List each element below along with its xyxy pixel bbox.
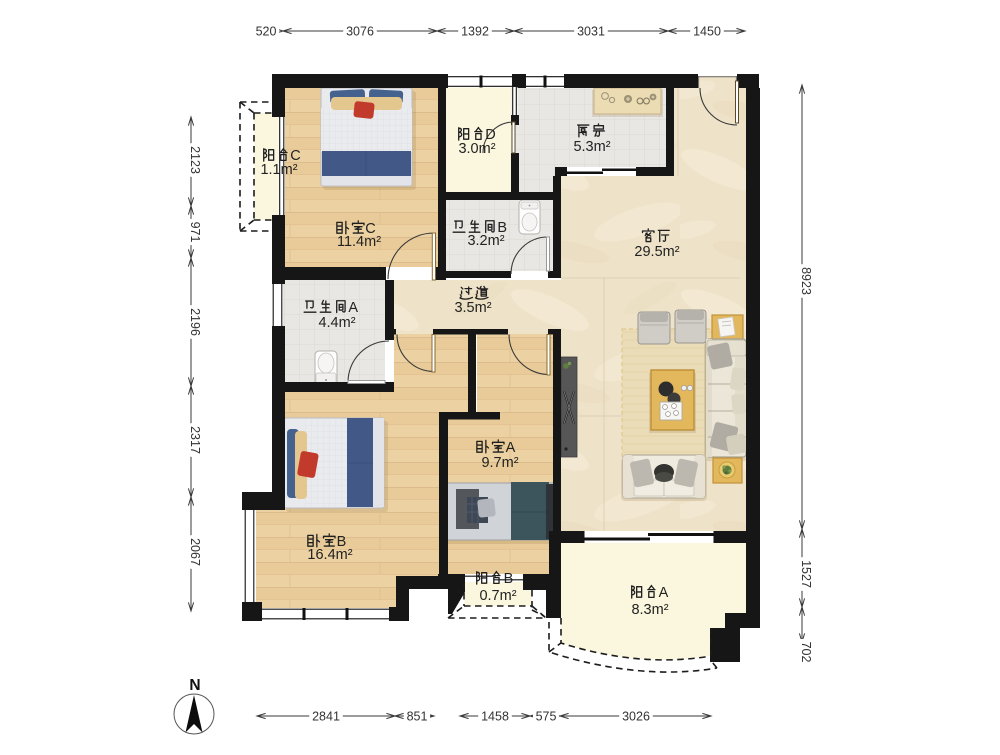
svg-text:1450: 1450 [693,25,721,39]
svg-text:2841: 2841 [312,710,340,724]
svg-text:8.3m²: 8.3m² [631,602,668,618]
svg-text:1527: 1527 [799,560,813,588]
svg-text:1458: 1458 [481,710,509,724]
svg-text:0.7m²: 0.7m² [479,588,516,604]
svg-text:9.7m²: 9.7m² [481,455,518,471]
svg-text:971: 971 [188,222,202,243]
svg-text:3.5m²: 3.5m² [454,300,491,316]
svg-text:3.0m²: 3.0m² [458,141,495,157]
svg-text:2123: 2123 [188,146,202,174]
svg-text:A: A [348,300,358,316]
svg-text:16.4m²: 16.4m² [307,547,352,563]
svg-text:B: B [504,571,514,587]
svg-text:1.1m²: 1.1m² [260,162,297,178]
svg-text:702: 702 [799,642,813,663]
svg-text:11.4m²: 11.4m² [337,234,381,250]
svg-text:N: N [189,677,200,694]
svg-text:5.3m²: 5.3m² [573,139,610,155]
svg-text:29.5m²: 29.5m² [634,244,679,260]
svg-text:520: 520 [256,25,277,39]
svg-text:A: A [659,585,669,601]
svg-text:851: 851 [407,710,428,724]
svg-text:2317: 2317 [188,426,202,454]
svg-text:8923: 8923 [799,267,813,295]
svg-text:2196: 2196 [188,308,202,336]
svg-text:2067: 2067 [188,538,202,566]
svg-text:1392: 1392 [461,25,489,39]
svg-text:3.2m²: 3.2m² [467,233,504,249]
svg-text:3031: 3031 [577,25,605,39]
svg-text:4.4m²: 4.4m² [318,315,355,331]
svg-text:575: 575 [536,710,557,724]
svg-text:3076: 3076 [346,25,374,39]
svg-text:A: A [506,440,516,456]
svg-text:3026: 3026 [622,710,650,724]
